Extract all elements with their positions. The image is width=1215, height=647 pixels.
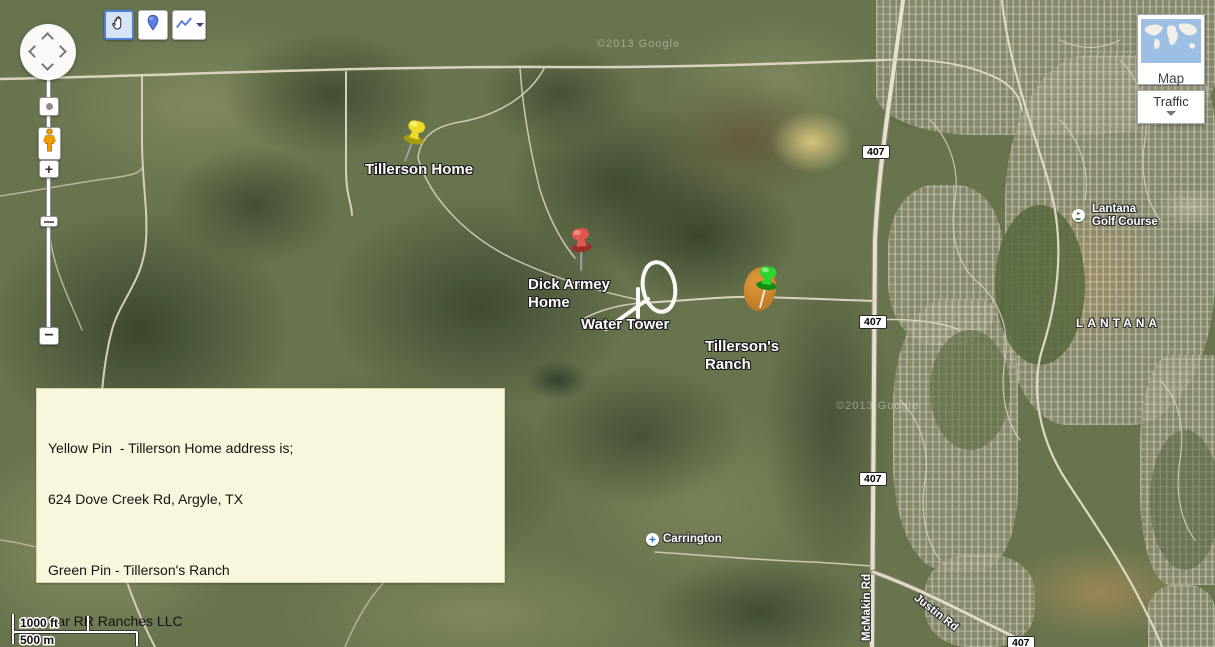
traffic-toggle-button[interactable]: Traffic — [1137, 90, 1205, 124]
world-map-thumbnail — [1141, 50, 1201, 67]
carrington-label: Carrington — [663, 533, 722, 546]
carrington-icon — [646, 533, 659, 546]
highway-407-shield: 407 — [859, 315, 887, 329]
pin-label-tillersons-ranch: Tillerson's Ranch — [705, 338, 779, 373]
lantana-golf-course-label: Lantana Golf Course — [1092, 203, 1158, 229]
pan-up-arrow-icon[interactable] — [41, 32, 54, 45]
handle-ridge — [44, 221, 54, 223]
map-application-window: ©2013 Google ©2013 Google Tillerson Home… — [0, 0, 1215, 647]
zoom-out-button[interactable]: − — [39, 327, 59, 345]
polyline-icon — [174, 14, 194, 37]
pan-left-arrow-icon[interactable] — [28, 45, 41, 58]
red-pin[interactable] — [565, 225, 600, 275]
highway-407-shield: 407 — [1007, 636, 1035, 647]
map-mode-button[interactable]: Map — [1137, 14, 1205, 85]
reset-view-button[interactable] — [39, 97, 59, 116]
pan-control — [20, 24, 76, 80]
map-button-label: Map — [1138, 71, 1204, 86]
zoom-slider-handle[interactable] — [40, 216, 58, 227]
chevron-down-icon — [196, 23, 204, 27]
pin-label-dick-armey-home: Dick Armey Home — [528, 276, 610, 311]
traffic-button-label: Traffic — [1138, 94, 1204, 109]
map-pin-icon — [143, 13, 163, 38]
zoom-slider-track[interactable] — [46, 78, 51, 334]
highway-407-shield: 407 — [859, 472, 887, 486]
mcmakin-rd-label: McMakin Rd — [861, 574, 874, 641]
pegman-street-view[interactable] — [38, 127, 61, 160]
pan-right-arrow-icon[interactable] — [54, 45, 67, 58]
hand-icon — [109, 13, 129, 38]
scale-bar: 1000 ft 500 m — [8, 606, 158, 647]
dot-icon — [46, 103, 53, 110]
info-line: Green Pin - Tillerson's Ranch — [48, 562, 490, 579]
scale-metric-label: 500 m — [20, 633, 54, 647]
info-line: Yellow Pin - Tillerson Home address is; — [48, 440, 490, 457]
marker-tool-button[interactable] — [138, 10, 168, 40]
line-tool-button[interactable] — [172, 10, 206, 40]
golf-course-icon — [1072, 209, 1085, 222]
info-line: 624 Dove Creek Rd, Argyle, TX — [48, 491, 490, 508]
info-box: Yellow Pin - Tillerson Home address is; … — [36, 388, 505, 583]
pin-label-tillerson-home: Tillerson Home — [365, 161, 473, 179]
chevron-down-icon — [1166, 111, 1176, 116]
pegman-icon — [42, 128, 57, 159]
zoom-in-button[interactable]: + — [39, 160, 59, 178]
pan-tool-button[interactable] — [104, 10, 134, 40]
pan-down-arrow-icon[interactable] — [41, 58, 54, 71]
drawing-toolbar — [104, 10, 206, 40]
scale-imperial-label: 1000 ft — [20, 616, 58, 630]
lantana-district-label: LANTANA — [1076, 317, 1161, 330]
highway-407-shield: 407 — [862, 145, 890, 159]
water-tower-label: Water Tower — [581, 316, 669, 334]
